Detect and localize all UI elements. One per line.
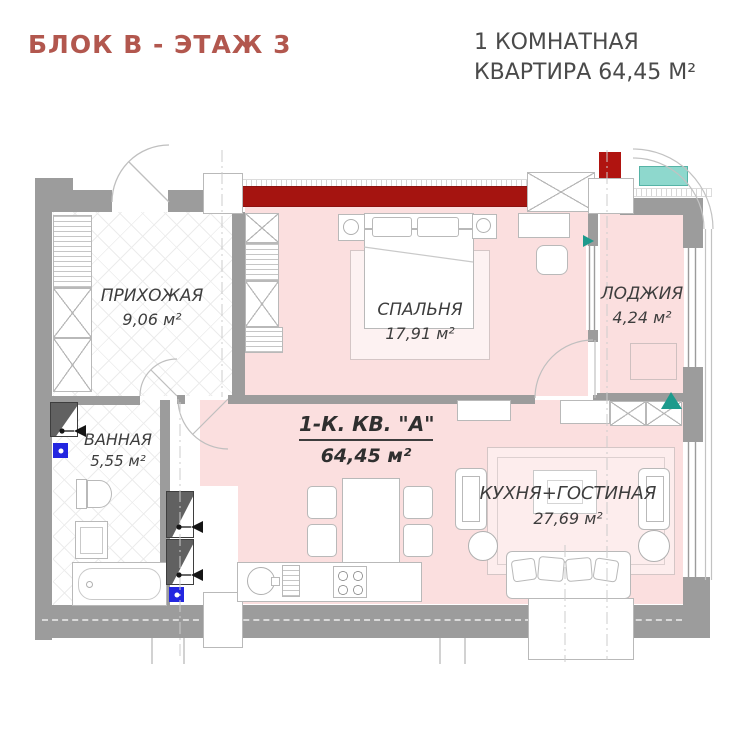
side-table <box>468 531 498 561</box>
shaft-box <box>528 598 634 660</box>
dining-table <box>342 478 400 566</box>
chair <box>536 245 568 275</box>
wardrobe <box>610 401 646 426</box>
bathroom-sink-basin <box>80 527 103 554</box>
room-label-bathroom: ВАННАЯ 5,55 м² <box>68 430 168 470</box>
subtitle-line2: КВАРТИРА 64,45 М² <box>474 58 696 88</box>
vent-shaft <box>166 539 194 585</box>
insulation-hatch <box>630 188 712 197</box>
chair <box>403 524 433 557</box>
wardrobe <box>53 215 92 288</box>
toilet-tank <box>76 479 87 509</box>
corner-junction-box <box>588 178 634 214</box>
cabinet <box>457 400 511 421</box>
room-label-hallway: ПРИХОЖАЯ 9,06 м² <box>88 286 216 329</box>
room-area: 17,91 м² <box>356 324 484 343</box>
vent-shaft <box>166 491 194 538</box>
toilet <box>87 480 112 508</box>
room-area: 4,24 м² <box>592 308 692 327</box>
sofa-pillow <box>565 557 593 582</box>
floorplan-page: БЛОК В - ЭТАЖ 3 1 КОМНАТНАЯ КВАРТИРА 64,… <box>0 0 747 744</box>
wall <box>683 367 703 395</box>
room-area: 9,06 м² <box>88 310 216 329</box>
entrance-door-leaf <box>129 162 169 202</box>
wall <box>683 203 703 248</box>
chair <box>403 486 433 519</box>
wall <box>683 577 710 638</box>
room-area: 27,69 м² <box>472 509 664 528</box>
apartment-subtitle: 1 КОМНАТНАЯ КВАРТИРА 64,45 М² <box>474 28 696 87</box>
page-title: БЛОК В - ЭТАЖ 3 <box>28 30 292 59</box>
plumbing-riser-marker <box>169 587 184 602</box>
entrance-door-arc <box>112 145 169 202</box>
subtitle-line1: 1 КОМНАТНАЯ <box>474 28 696 58</box>
wall <box>35 190 112 212</box>
wall <box>177 395 185 404</box>
bathtub-drain <box>86 581 93 588</box>
room-name: КУХНЯ+ГОСТИНАЯ <box>472 483 664 505</box>
lamp <box>343 219 359 235</box>
sofa-pillow <box>592 557 619 582</box>
wall <box>683 395 703 442</box>
room-name: ПРИХОЖАЯ <box>88 286 216 306</box>
chair <box>307 524 337 557</box>
sofa-pillow <box>537 556 565 582</box>
cabinet <box>560 400 610 424</box>
room-label-loggia: ЛОДЖИЯ 4,24 м² <box>592 284 692 327</box>
apartment-area: 64,45 м² <box>299 445 433 467</box>
plumbing-riser-marker <box>53 443 68 458</box>
room-label-bedroom: СПАЛЬНЯ 17,91 м² <box>356 300 484 343</box>
wardrobe <box>245 281 279 327</box>
wardrobe <box>245 213 279 243</box>
room-name: СПАЛЬНЯ <box>356 300 484 320</box>
wall <box>232 212 245 404</box>
stove <box>333 566 367 598</box>
room-name: ЛОДЖИЯ <box>592 284 692 304</box>
room-label-kitchen-living: КУХНЯ+ГОСТИНАЯ 27,69 м² <box>472 483 664 528</box>
dish-rack <box>282 565 300 597</box>
kitchen-nook <box>194 486 238 604</box>
pillow <box>417 217 459 237</box>
loggia-cabinet <box>630 343 677 380</box>
faucet <box>271 577 280 586</box>
room-name: ВАННАЯ <box>68 430 168 449</box>
wardrobe <box>53 288 92 338</box>
shaft-box <box>527 172 595 212</box>
pillow <box>372 217 412 237</box>
lamp <box>476 218 491 233</box>
shelf <box>245 327 283 353</box>
chair <box>307 486 337 519</box>
sofa-pillow <box>511 557 538 582</box>
apartment-name: 1-К. КВ. "А" <box>299 412 433 441</box>
wardrobe <box>646 401 682 426</box>
wardrobe <box>245 243 279 281</box>
apartment-label: 1-К. КВ. "А" 64,45 м² <box>299 412 433 467</box>
room-area: 5,55 м² <box>68 452 168 470</box>
wardrobe <box>53 338 92 392</box>
desk <box>518 213 570 238</box>
wall <box>168 190 206 212</box>
shaft-box <box>203 173 243 214</box>
wall <box>588 330 598 342</box>
side-table <box>638 530 670 562</box>
loggia-glazing <box>639 166 688 186</box>
wall <box>588 212 598 246</box>
